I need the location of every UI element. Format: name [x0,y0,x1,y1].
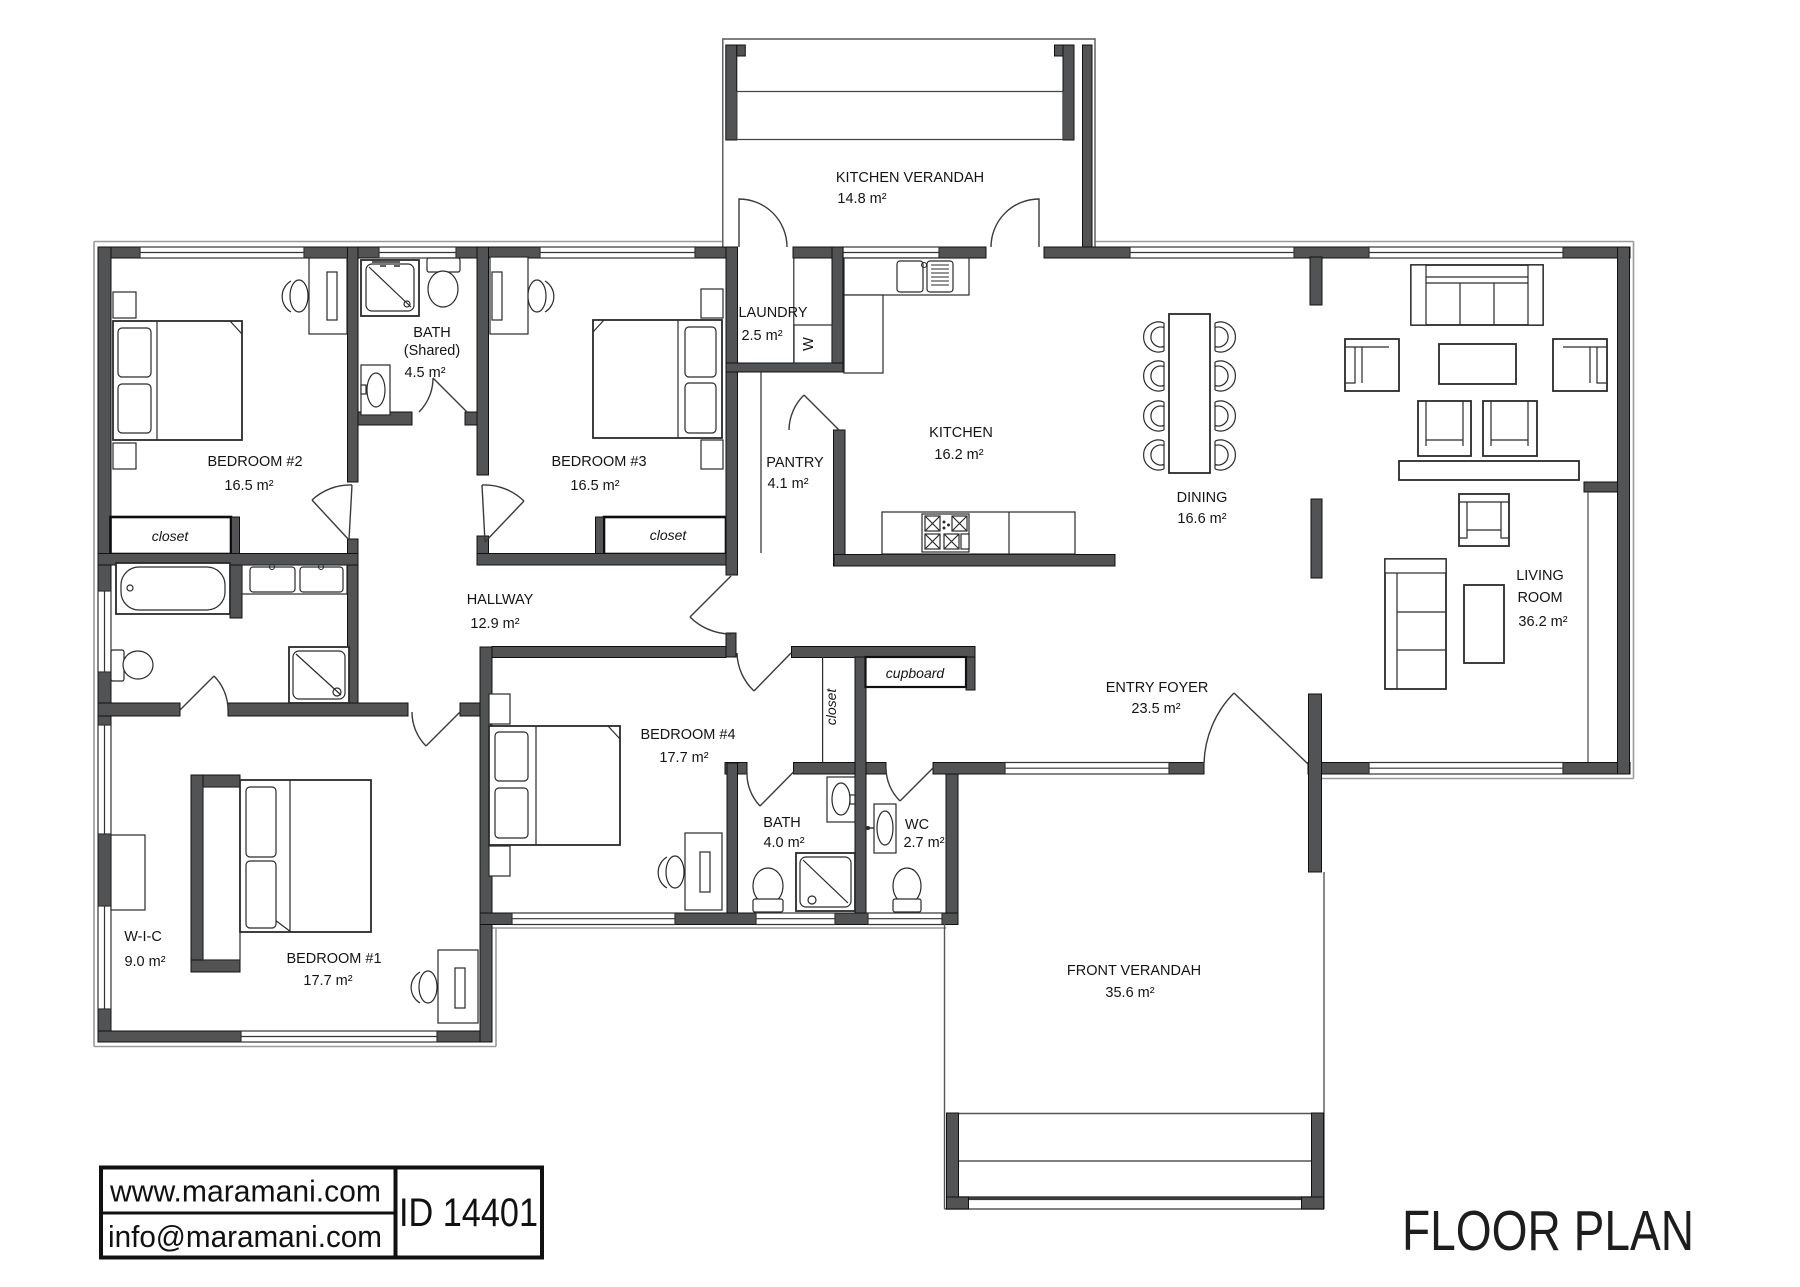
svg-text:closet: closet [650,527,688,543]
svg-text:2.7 m²: 2.7 m² [903,835,944,851]
svg-text:ENTRY FOYER: ENTRY FOYER [1106,680,1209,696]
svg-text:www.maramani.com: www.maramani.com [109,1174,381,1209]
svg-text:16.5 m²: 16.5 m² [224,478,273,494]
svg-text:W-I-C: W-I-C [124,929,162,945]
svg-text:KITCHEN: KITCHEN [929,425,993,441]
svg-text:BATH: BATH [413,325,451,341]
svg-text:BEDROOM #3: BEDROOM #3 [551,454,646,470]
svg-text:14.8 m²: 14.8 m² [837,191,886,207]
svg-text:BEDROOM #1: BEDROOM #1 [286,951,381,967]
svg-text:WC: WC [905,817,929,833]
svg-text:LAUNDRY: LAUNDRY [738,305,807,321]
svg-text:DINING: DINING [1177,490,1228,506]
svg-text:35.6 m²: 35.6 m² [1105,985,1154,1001]
svg-text:ID 14401: ID 14401 [399,1191,538,1235]
svg-text:FRONT VERANDAH: FRONT VERANDAH [1067,963,1201,979]
svg-text:BATH: BATH [763,815,801,831]
svg-text:LIVING: LIVING [1516,568,1564,584]
svg-text:HALLWAY: HALLWAY [467,592,534,608]
svg-text:BEDROOM #2: BEDROOM #2 [207,454,302,470]
svg-text:4.1 m²: 4.1 m² [767,476,808,492]
svg-text:KITCHEN VERANDAH: KITCHEN VERANDAH [836,170,984,186]
svg-text:4.5 m²: 4.5 m² [404,365,445,381]
svg-text:16.5 m²: 16.5 m² [570,478,619,494]
svg-text:closet: closet [152,528,190,544]
svg-text:closet: closet [823,688,839,726]
svg-text:W: W [801,337,817,351]
svg-text:16.6 m²: 16.6 m² [1177,511,1226,527]
svg-text:36.2 m²: 36.2 m² [1518,614,1567,630]
svg-text:17.7 m²: 17.7 m² [303,973,352,989]
svg-text:cupboard: cupboard [886,665,946,681]
svg-text:FLOOR PLAN: FLOOR PLAN [1402,1199,1694,1263]
svg-text:23.5 m²: 23.5 m² [1131,701,1180,717]
svg-text:16.2 m²: 16.2 m² [934,447,983,463]
svg-text:BEDROOM #4: BEDROOM #4 [640,727,735,743]
svg-text:(Shared): (Shared) [404,343,460,359]
svg-text:info@maramani.com: info@maramani.com [108,1219,382,1254]
svg-text:17.7 m²: 17.7 m² [659,750,708,766]
svg-text:4.0 m²: 4.0 m² [763,835,804,851]
svg-text:12.9 m²: 12.9 m² [470,616,519,632]
svg-text:2.5 m²: 2.5 m² [741,328,782,344]
svg-text:PANTRY: PANTRY [766,455,824,471]
svg-text:ROOM: ROOM [1517,590,1562,606]
svg-text:9.0 m²: 9.0 m² [124,954,165,970]
